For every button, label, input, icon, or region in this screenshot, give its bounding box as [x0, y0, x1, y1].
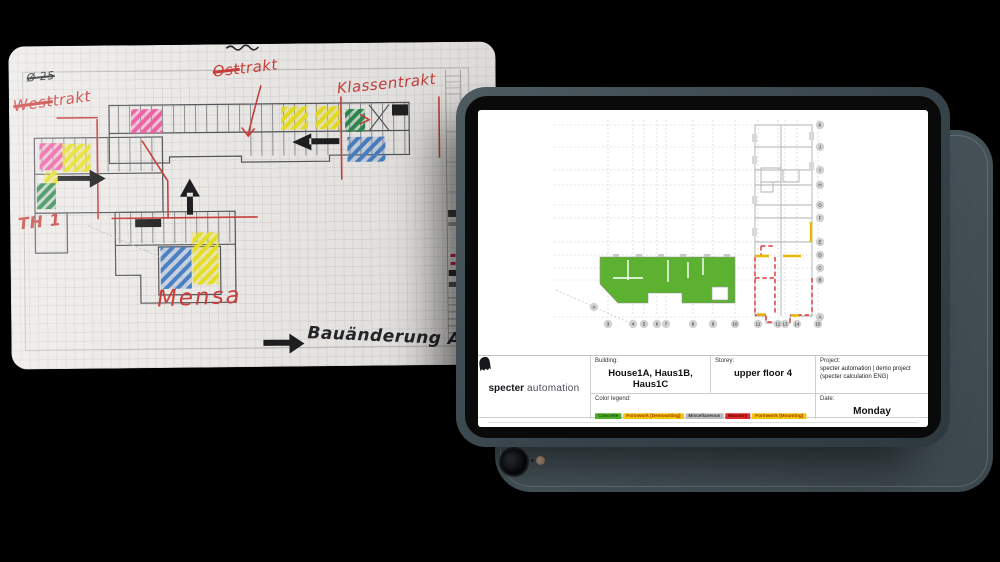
- grid-col-label: 12: [775, 322, 781, 327]
- legend-chip: Formwork (Mounting): [752, 413, 806, 419]
- grid-row-label: B: [818, 278, 821, 283]
- grid-row-label: H: [818, 183, 821, 188]
- storey-label: Storey:: [715, 358, 811, 365]
- grid-row-label: J: [819, 145, 821, 150]
- grid-col-label: 15: [815, 322, 821, 327]
- project-value: specter automation | demo project (spect…: [820, 366, 924, 382]
- building-house1-green: [600, 254, 735, 303]
- screen-footer-rule: [488, 422, 918, 423]
- project-label: Project:: [820, 358, 924, 365]
- building-value: House1A, Haus1B, Haus1C: [595, 368, 706, 390]
- grid-row-label: E: [818, 240, 821, 245]
- masonry-red-dashed: [755, 246, 812, 322]
- legend-chip: Concrete: [595, 413, 622, 419]
- date-label: Date:: [820, 396, 924, 403]
- building-field: Building: House1A, Haus1B, Haus1C: [591, 356, 711, 394]
- grid-row-label: K: [818, 123, 821, 128]
- formwork-yellow-marks: [755, 222, 811, 316]
- legend-chip: Masonry: [725, 413, 750, 419]
- scene: Ø 25 Westtrakt Osttrakt Klassentrakt TH …: [0, 0, 1000, 562]
- grid-col-label: 11: [756, 322, 761, 327]
- app-logo: specter automation: [478, 356, 591, 419]
- mensa-label: Mensa: [156, 283, 242, 313]
- digital-floorplan: KJIHGFEDCBA3456789101112131415A: [478, 110, 928, 355]
- grid-row-label: G: [818, 203, 822, 208]
- grid-col-label: 13: [782, 322, 788, 327]
- camera-lens-icon: [499, 447, 529, 477]
- storey-field: Storey: upper floor 4: [711, 356, 816, 394]
- specter-ghost-icon: [478, 356, 492, 373]
- plan-info-bar: specter automation Building: House1A, Ha…: [478, 355, 928, 418]
- grid-col-label: 14: [794, 322, 800, 327]
- brand-name-bold: specter: [488, 383, 524, 394]
- pencil-scribble-mark: [226, 45, 258, 50]
- brand-name-light: automation: [527, 383, 579, 394]
- project-field: Project: specter automation | demo proje…: [816, 356, 928, 394]
- tablet-front-device: KJIHGFEDCBA3456789101112131415A specter …: [456, 87, 950, 447]
- site-marker-label: A: [592, 305, 595, 310]
- date-field: Date: Monday 01/15/2024: [816, 394, 928, 419]
- building-haus1c-outline: [755, 125, 812, 323]
- legend-chip: Formwork (Demounting): [623, 413, 684, 419]
- legend-chip-row: ConcreteFormwork (Demounting)Miscellaneo…: [595, 407, 763, 419]
- grid-row-label: A: [818, 315, 821, 320]
- building-label: Building:: [595, 358, 706, 365]
- storey-value: upper floor 4: [715, 368, 811, 379]
- grid-row-label: I: [819, 168, 820, 173]
- color-legend: Color legend: ConcreteFormwork (Demounti…: [591, 394, 816, 419]
- microphone-dot-icon: [531, 459, 534, 462]
- app-screen: KJIHGFEDCBA3456789101112131415A specter …: [478, 110, 928, 427]
- grid-col-label: 10: [732, 322, 738, 327]
- camera-flash-icon: [536, 456, 545, 465]
- legend-label: Color legend:: [595, 396, 811, 403]
- date-day: Monday: [820, 405, 924, 419]
- legend-chip: Miscellaneous: [685, 413, 723, 419]
- grid-row-label: F: [819, 216, 822, 221]
- pencil-dimension-note: Ø 25: [26, 69, 55, 85]
- paper-floorplan-scan: Ø 25 Westtrakt Osttrakt Klassentrakt TH …: [8, 41, 498, 369]
